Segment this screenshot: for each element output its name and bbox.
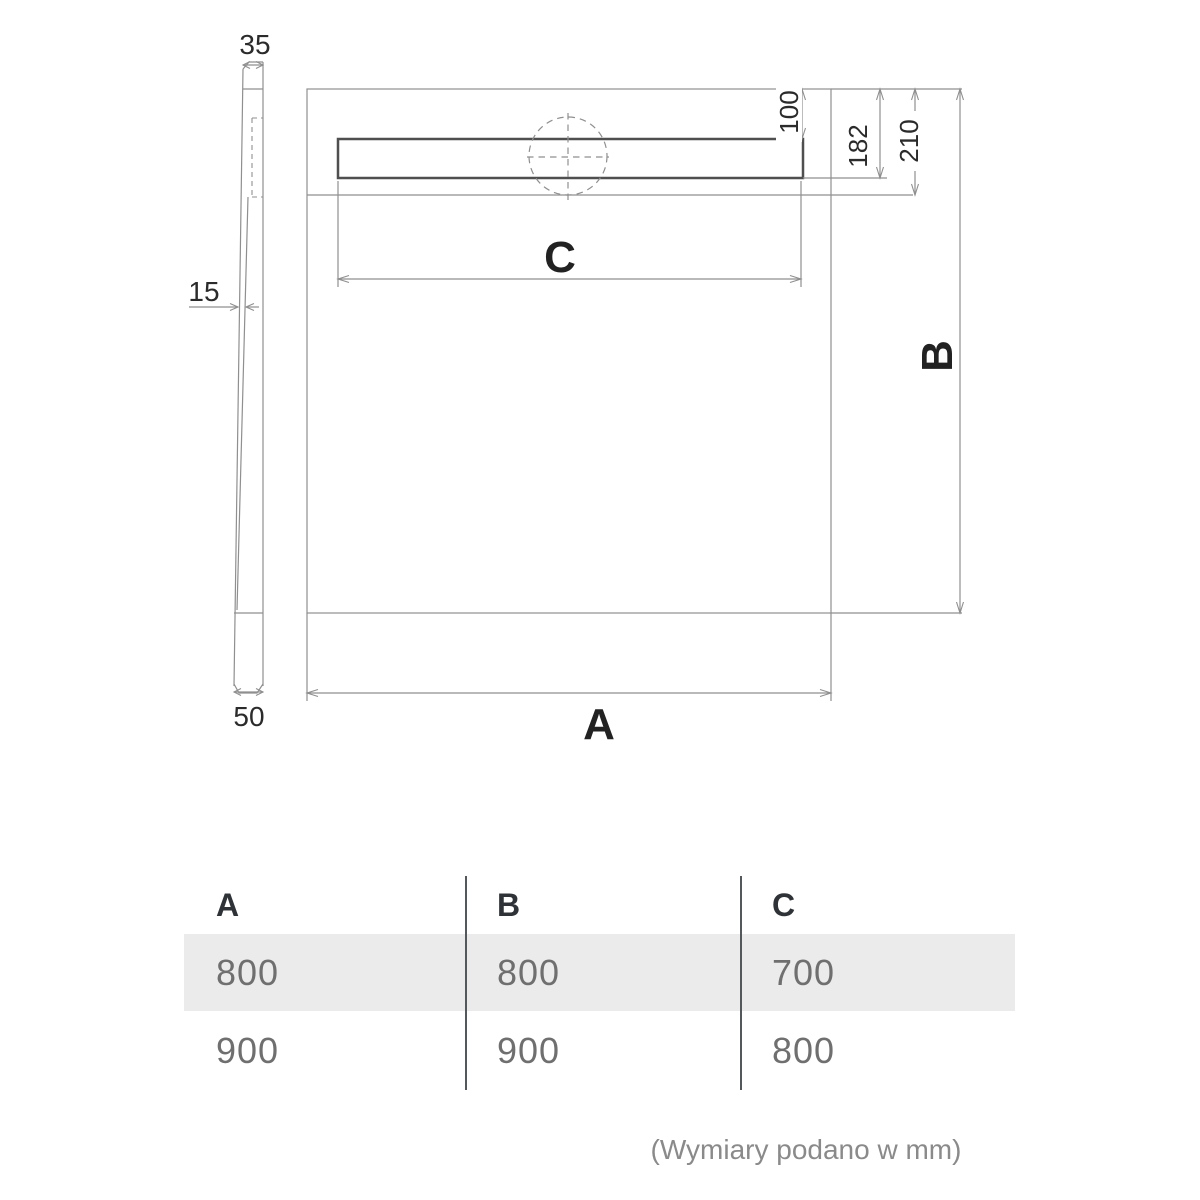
column-divider [740, 876, 742, 1090]
side-view [234, 62, 263, 693]
units-note: (Wymiary podano w mm) [556, 1134, 1056, 1166]
column-header-a: A [184, 876, 465, 934]
dim-label-C: C [530, 236, 590, 280]
cell-b: 800 [465, 934, 740, 1011]
cell-a: 800 [184, 934, 465, 1011]
dim-label-50: 50 [229, 703, 269, 731]
dim-label-35: 35 [235, 31, 275, 59]
linear-drain [338, 139, 803, 178]
column-divider [465, 876, 467, 1090]
dimensions-table: A B C 800 800 700 900 900 800 [184, 876, 1015, 1090]
table-row: 800 800 700 [184, 934, 1015, 1011]
plan-dimensions [307, 89, 964, 701]
dim-label-B: B [916, 326, 960, 386]
dim-label-182: 182 [845, 116, 871, 176]
dim-label-100: 100 [776, 82, 802, 142]
column-header-b: B [465, 876, 740, 934]
cell-b: 900 [465, 1011, 740, 1090]
column-header-c: C [740, 876, 1015, 934]
table-row: 900 900 800 [184, 1011, 1015, 1090]
cell-a: 900 [184, 1011, 465, 1090]
dim-label-210: 210 [896, 111, 922, 171]
cell-c: 800 [740, 1011, 1015, 1090]
table-header-row: A B C [184, 876, 1015, 934]
cell-c: 700 [740, 934, 1015, 1011]
side-outer-edge [234, 69, 243, 686]
dim-label-15: 15 [184, 278, 224, 306]
dim-label-A: A [569, 703, 629, 747]
